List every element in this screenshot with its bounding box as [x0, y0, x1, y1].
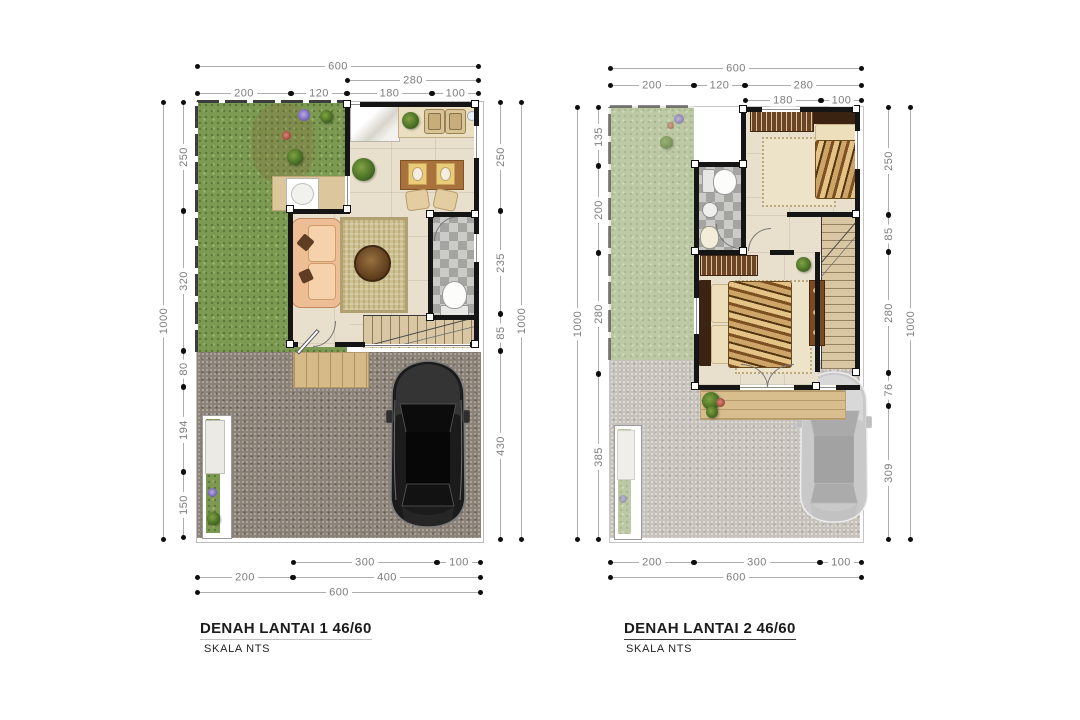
wall: [335, 342, 365, 347]
indoor-plant: [352, 158, 375, 181]
wall: [787, 212, 860, 217]
dim-label: 250: [178, 144, 190, 170]
dimension: 180: [745, 100, 821, 101]
window: [474, 126, 479, 158]
dimension: 150: [183, 472, 184, 538]
flower-purple: [208, 488, 217, 497]
dim-label: 1000: [516, 305, 528, 337]
wall: [741, 107, 746, 255]
dimension: 250: [183, 102, 184, 211]
dim-label: 200: [231, 88, 257, 100]
dim-label: 250: [883, 148, 895, 174]
column: [739, 160, 747, 168]
dimension: 280: [745, 85, 862, 86]
wall: [288, 209, 293, 347]
toilet-bowl: [442, 281, 467, 309]
dimension: 100: [432, 93, 479, 94]
column: [691, 160, 699, 168]
dimension: 85: [888, 215, 889, 252]
dimension: 400: [293, 577, 481, 578]
dim-label: 600: [325, 61, 351, 73]
fence-line: [608, 107, 611, 360]
bathroom-wall: [428, 315, 479, 320]
dim-label: 600: [326, 587, 352, 599]
dim-label: 309: [883, 460, 895, 486]
column: [852, 210, 860, 218]
dim-label: 235: [495, 250, 507, 276]
dimension: 320: [183, 211, 184, 351]
dimension: 194: [183, 387, 184, 472]
wall: [770, 250, 794, 255]
sofa-cushion: [308, 263, 336, 300]
toilet-bowl: [713, 169, 737, 195]
dim-label: 100: [828, 557, 854, 569]
wall: [345, 102, 479, 107]
window: [855, 131, 860, 169]
column: [812, 382, 820, 390]
wardrobe: [750, 111, 814, 132]
dimension: 80: [183, 351, 184, 387]
garden-bush: [287, 149, 303, 165]
dim-label: 200: [593, 197, 605, 223]
garden-area-faded: [610, 107, 694, 360]
dim-label: 200: [639, 557, 665, 569]
window: [694, 298, 699, 334]
dim-label: 85: [883, 224, 895, 243]
bathroom-wall: [694, 162, 699, 250]
window: [474, 234, 479, 262]
column: [852, 368, 860, 376]
column: [739, 105, 747, 113]
wardrobe: [700, 255, 758, 276]
dim-label: 120: [306, 88, 332, 100]
dimension: 385: [598, 374, 599, 540]
dim-label: 385: [593, 444, 605, 470]
bathroom-wall: [428, 212, 433, 320]
dimension: 280: [598, 253, 599, 374]
dim-label: 85: [495, 323, 507, 342]
bed-blanket: [815, 140, 858, 199]
garden-bush: [660, 136, 673, 149]
dimension: 200: [598, 166, 599, 253]
sliding-door: [345, 176, 350, 206]
dim-label: 76: [883, 380, 895, 399]
column: [691, 382, 699, 390]
dimension: 85: [500, 314, 501, 351]
dining-chair: [405, 188, 431, 211]
dim-label: 1000: [572, 307, 584, 339]
dim-label: 280: [791, 80, 817, 92]
fence-line: [197, 100, 347, 103]
dimension: 1000: [910, 107, 911, 540]
dimension: 600: [197, 66, 479, 67]
dimension: 100: [437, 562, 481, 563]
dim-label: 1000: [158, 305, 170, 337]
kitchen-sink: [424, 109, 445, 134]
dim-label: 135: [593, 124, 605, 150]
dim-label: 400: [374, 572, 400, 584]
dim-label: 180: [377, 88, 403, 100]
dim-label: 430: [495, 433, 507, 459]
dimension: 280: [347, 80, 479, 81]
kitchen-sink: [445, 109, 466, 134]
place-setting: [408, 163, 427, 185]
dimension: 120: [291, 93, 347, 94]
fence-line: [610, 105, 694, 108]
dimension: 180: [347, 93, 432, 94]
plan-2-title-block: DENAH LANTAI 2 46/60 SKALA NTS: [624, 620, 796, 655]
dim-label: 200: [639, 80, 665, 92]
floor-drain: [702, 202, 718, 218]
dimension: 200: [197, 577, 293, 578]
garden-bush: [320, 110, 333, 123]
balcony-plant: [706, 406, 718, 418]
dim-label: 600: [723, 572, 749, 584]
planter-bush: [207, 512, 220, 525]
dimension: 135: [598, 107, 599, 166]
wall: [288, 209, 350, 214]
dim-label: 280: [400, 75, 426, 87]
indoor-plant: [796, 257, 811, 272]
dim-label: 100: [829, 95, 855, 107]
dimension: 250: [888, 107, 889, 215]
wall: [815, 252, 820, 372]
dim-label: 194: [178, 417, 190, 443]
column: [471, 340, 479, 348]
dimension: 100: [821, 100, 862, 101]
dimension: 120: [694, 85, 745, 86]
dimension: 235: [500, 211, 501, 314]
dim-label: 180: [770, 95, 796, 107]
kitchen-plant: [402, 112, 419, 129]
flower-red: [282, 131, 291, 140]
planter-ledge-faded: [617, 430, 635, 480]
plan-title: DENAH LANTAI 1 46/60: [200, 620, 372, 640]
dim-label: 100: [443, 88, 469, 100]
column: [471, 100, 479, 108]
dimension: 600: [197, 592, 481, 593]
column: [286, 340, 294, 348]
flower-purple: [298, 109, 310, 121]
plan-title: DENAH LANTAI 2 46/60: [624, 620, 796, 640]
dimension: 200: [610, 562, 694, 563]
dim-label: 280: [883, 300, 895, 326]
dimension: 309: [888, 406, 889, 540]
dimension: 300: [293, 562, 437, 563]
scale-label: SKALA NTS: [200, 643, 372, 655]
floor-plan-sheet: 600 280 200 120 180 100 1000 250 320 80 …: [0, 0, 1080, 720]
fridge: [350, 106, 400, 142]
dim-label: 100: [446, 557, 472, 569]
car-top-view: [386, 358, 470, 530]
dimension: 600: [610, 68, 862, 69]
flower-purple: [619, 495, 627, 503]
dimension: 600: [610, 577, 862, 578]
dimension: 200: [197, 93, 291, 94]
fence-line: [195, 102, 198, 352]
dimension: 200: [610, 85, 694, 86]
dimension: 1000: [163, 102, 164, 540]
balcony-flower: [716, 398, 725, 407]
dimension: 280: [888, 252, 889, 373]
dim-label: 250: [495, 144, 507, 170]
dimension: 300: [694, 562, 820, 563]
column: [471, 210, 479, 218]
window: [762, 107, 800, 112]
column: [343, 205, 351, 213]
column: [426, 313, 434, 321]
dim-label: 280: [593, 301, 605, 327]
column: [691, 247, 699, 255]
dimension: 250: [500, 102, 501, 211]
column: [739, 247, 747, 255]
dimension: 430: [500, 351, 501, 540]
garage-door-line: [365, 344, 470, 347]
dimension: 1000: [521, 102, 522, 540]
dimension: 100: [820, 562, 862, 563]
planter-ledge: [205, 420, 225, 474]
dim-label: 120: [707, 80, 733, 92]
column: [426, 210, 434, 218]
scale-label: SKALA NTS: [624, 643, 796, 655]
dimension: 76: [888, 373, 889, 406]
flower-purple: [674, 114, 684, 124]
entry-deck: [293, 352, 369, 388]
dim-label: 320: [178, 268, 190, 294]
dim-label: 1000: [905, 307, 917, 339]
stairs-cut-line: [821, 217, 857, 277]
dimension: 1000: [577, 107, 578, 540]
dim-label: 600: [723, 63, 749, 75]
column: [343, 100, 351, 108]
dim-label: 200: [232, 572, 258, 584]
place-setting: [436, 163, 455, 185]
column: [286, 205, 294, 213]
dim-label: 150: [178, 492, 190, 518]
flower-red: [667, 122, 674, 129]
dim-label: 300: [352, 557, 378, 569]
dim-label: 80: [178, 359, 190, 378]
wall: [741, 107, 860, 112]
bed-headboard: [697, 280, 711, 366]
coffee-table: [354, 245, 391, 282]
plan-1-title-block: DENAH LANTAI 1 46/60 SKALA NTS: [200, 620, 372, 655]
bed-blanket: [728, 281, 792, 368]
dim-label: 300: [744, 557, 770, 569]
